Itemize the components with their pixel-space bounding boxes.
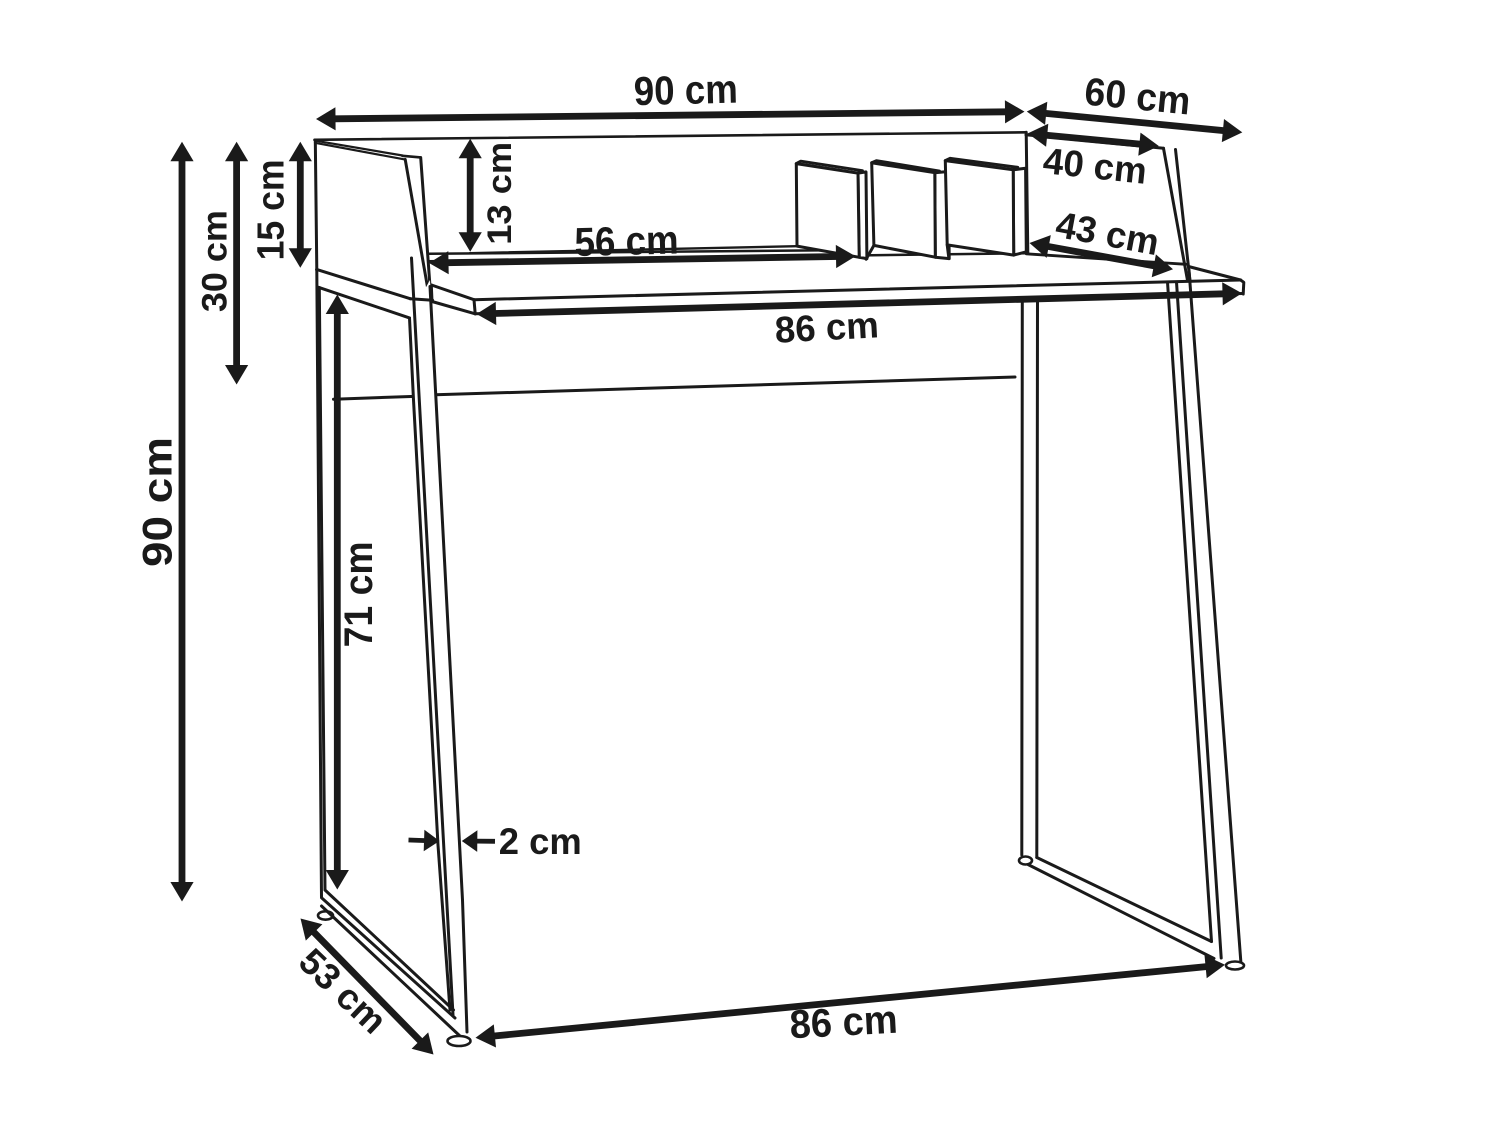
svg-text:13 cm: 13 cm <box>481 142 519 245</box>
svg-text:56 cm: 56 cm <box>574 216 679 265</box>
svg-text:90 cm: 90 cm <box>134 437 181 567</box>
svg-text:86 cm: 86 cm <box>789 998 899 1048</box>
svg-text:86 cm: 86 cm <box>774 304 880 350</box>
svg-text:71 cm: 71 cm <box>337 541 381 647</box>
svg-text:15 cm: 15 cm <box>250 159 292 260</box>
svg-text:90 cm: 90 cm <box>633 66 738 115</box>
svg-text:2 cm: 2 cm <box>499 821 582 862</box>
svg-text:30 cm: 30 cm <box>196 210 235 312</box>
